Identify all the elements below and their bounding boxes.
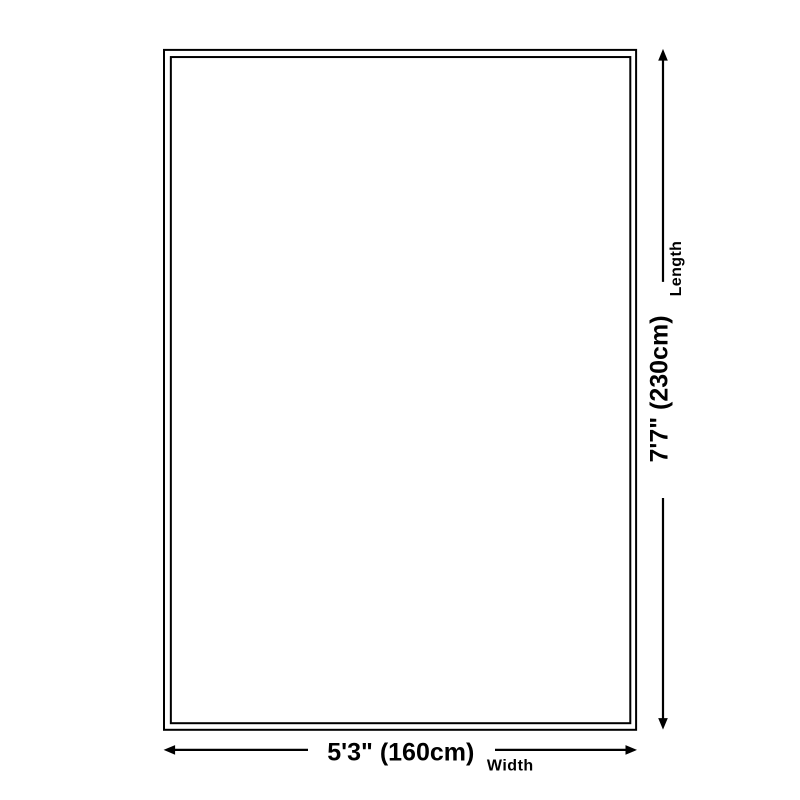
svg-text:Width: Width [487, 758, 534, 775]
svg-text:Length: Length [668, 241, 685, 297]
svg-text:7'7" (230cm): 7'7" (230cm) [646, 315, 674, 462]
svg-text:5'3" (160cm): 5'3" (160cm) [327, 739, 474, 767]
